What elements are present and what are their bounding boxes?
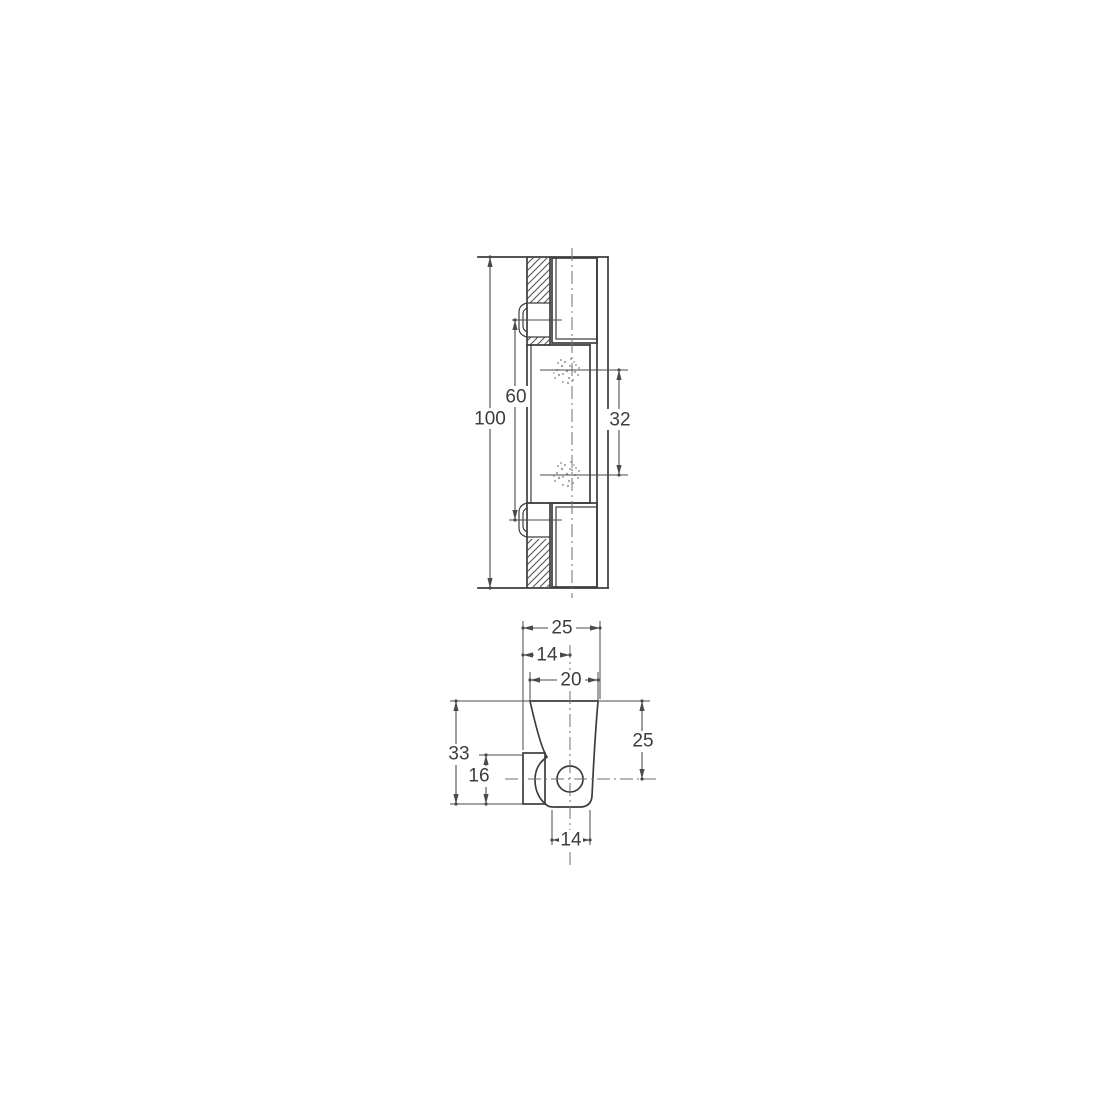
dimension-top-to-hole-25: 25 xyxy=(629,701,657,779)
dimension-overall-height-100: 100 xyxy=(470,257,510,588)
dimension-overall-depth-33: 33 xyxy=(445,701,523,804)
dim-label-100: 100 xyxy=(474,409,506,430)
dim-label-16: 16 xyxy=(468,766,489,787)
front-section-view: 100 60 32 xyxy=(470,248,634,598)
dim-label-20: 20 xyxy=(560,670,581,691)
weld-spot-lower xyxy=(553,461,580,487)
dimension-knuckle-width-14: 14 xyxy=(552,810,590,851)
dim-label-14-knuckle: 14 xyxy=(560,830,582,851)
dim-label-25-width: 25 xyxy=(551,618,572,639)
upper-frame-profile xyxy=(552,258,597,343)
drawing-canvas: 100 60 32 25 xyxy=(0,0,1100,1100)
step-lines xyxy=(527,345,590,503)
hatch-area-top xyxy=(527,258,550,303)
dimension-tongue-width-20: 20 xyxy=(530,670,598,701)
technical-drawing-svg: 100 60 32 25 xyxy=(0,0,1100,1100)
rivet-top xyxy=(512,303,562,337)
dim-label-32: 32 xyxy=(609,410,630,431)
hatch-area-top-sliver xyxy=(527,337,550,345)
rivet-bottom xyxy=(509,503,562,537)
dimension-spot-spacing-32: 32 xyxy=(606,370,634,475)
dim-label-60: 60 xyxy=(505,387,526,408)
dim-label-25-depth: 25 xyxy=(632,731,653,752)
lower-frame-profile xyxy=(552,503,597,587)
dim-label-33: 33 xyxy=(448,744,469,765)
hatch-area-bottom xyxy=(527,539,550,587)
lower-frame-inner-lines xyxy=(556,507,597,587)
top-profile-view: 25 14 20 33 16 xyxy=(445,618,657,867)
weld-spot-upper xyxy=(553,358,580,384)
upper-frame-inner-lines xyxy=(556,258,597,339)
dim-label-14-offset: 14 xyxy=(536,645,558,666)
dimension-edge-to-hole-14: 14 xyxy=(523,645,570,666)
